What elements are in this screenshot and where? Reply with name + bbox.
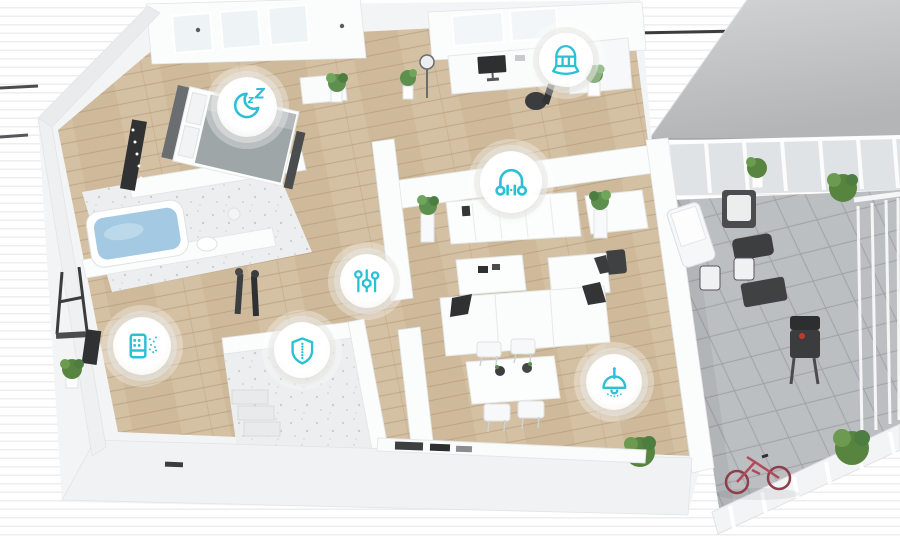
coffee-table [456, 255, 526, 295]
roof-overhang [649, 0, 900, 139]
sliders-icon [350, 264, 383, 297]
toilet [197, 237, 217, 251]
svg-text:z: z [247, 95, 255, 107]
moon-zzz-icon: z Z [228, 88, 265, 125]
curtain-marker[interactable] [539, 33, 593, 87]
audio-marker[interactable] [480, 151, 542, 213]
controls-marker[interactable] [340, 254, 394, 308]
security-marker[interactable] [274, 322, 330, 378]
shield-icon [285, 333, 320, 368]
lighting-marker[interactable] [586, 354, 642, 410]
curtain-icon [549, 43, 582, 76]
outdoor-armchair [722, 190, 756, 228]
bath-sink [228, 208, 240, 220]
headphones-icon [492, 163, 530, 201]
smart-home-floorplan: z Z [0, 0, 900, 537]
sleep-mode-marker[interactable]: z Z [217, 77, 277, 137]
air-purifier-marker[interactable] [113, 317, 171, 375]
floorplan-render [0, 0, 900, 537]
pendant-lamp-icon [597, 365, 632, 400]
svg-text:Z: Z [254, 88, 265, 102]
terrace-back-railing [650, 136, 900, 196]
air-purifier-icon [124, 328, 160, 364]
